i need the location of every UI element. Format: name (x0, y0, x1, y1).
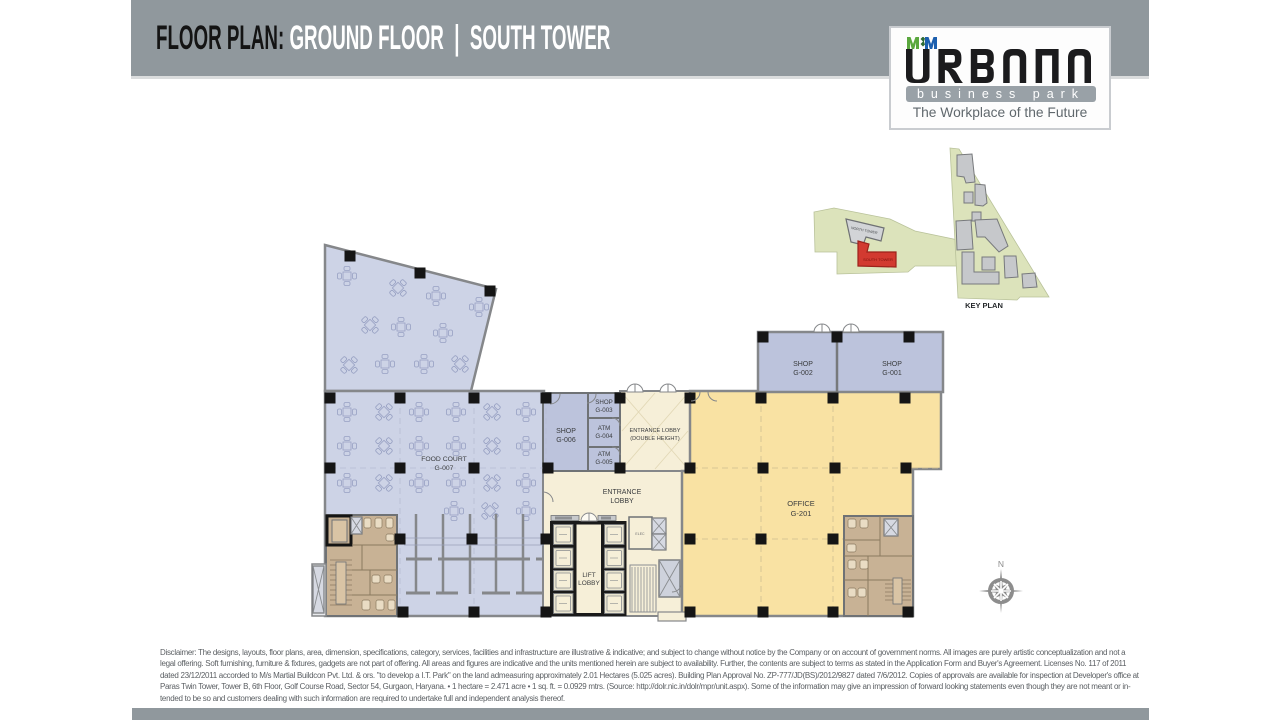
svg-text:ELEC: ELEC (635, 532, 645, 536)
svg-text:G-002: G-002 (793, 370, 813, 377)
svg-text:FOOD COURT: FOOD COURT (421, 456, 467, 463)
svg-text:SHOP: SHOP (793, 361, 813, 368)
svg-text:N: N (998, 559, 1004, 569)
svg-text:G-201: G-201 (791, 509, 812, 518)
svg-text:LIFT: LIFT (582, 572, 595, 579)
svg-text:(DOUBLE HEIGHT): (DOUBLE HEIGHT) (630, 436, 680, 442)
svg-text:KEY PLAN: KEY PLAN (965, 301, 1003, 310)
svg-text:SHOP: SHOP (882, 361, 902, 368)
svg-text:SOUTH TOWER: SOUTH TOWER (863, 257, 893, 262)
svg-text:G-005: G-005 (595, 459, 613, 466)
svg-text:LOBBY: LOBBY (578, 580, 600, 587)
svg-text:G-003: G-003 (595, 407, 613, 414)
svg-text:G-004: G-004 (595, 433, 613, 440)
svg-text:LOBBY: LOBBY (610, 498, 634, 505)
svg-text:ENTRANCE LOBBY: ENTRANCE LOBBY (630, 428, 681, 434)
svg-text:G-007: G-007 (435, 465, 454, 472)
svg-text:G-006: G-006 (556, 437, 576, 444)
svg-text:SHOP: SHOP (556, 428, 576, 435)
svg-text:SHOP: SHOP (595, 399, 613, 406)
svg-text:ENTRANCE: ENTRANCE (603, 489, 642, 496)
svg-text:ATM: ATM (598, 451, 611, 458)
svg-text:OFFICE: OFFICE (787, 499, 815, 508)
svg-text:G-001: G-001 (882, 370, 902, 377)
svg-text:ATM: ATM (598, 425, 611, 432)
